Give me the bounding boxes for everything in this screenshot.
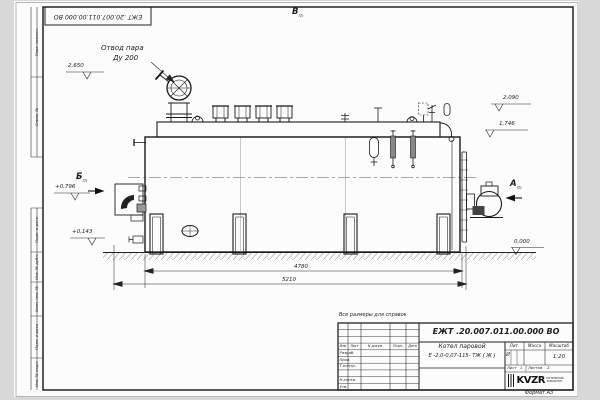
front-burner xyxy=(115,184,146,243)
elevation-marks xyxy=(54,72,544,255)
designation: ЕЖТ .20.007.011.00.000 ВО xyxy=(420,325,572,341)
view-label-front: Б(2) xyxy=(76,173,88,184)
lit-header: Лит. xyxy=(505,344,524,349)
elevation-burner-axis: +0,796 xyxy=(55,184,75,190)
col-header-podp: Подп. xyxy=(390,345,406,349)
supports xyxy=(150,214,450,254)
reference-note: Все размеры для справок xyxy=(339,313,407,319)
view-rear-letter: А xyxy=(510,179,517,189)
row-tkontr: Т.контр. xyxy=(340,364,356,368)
top-fittings xyxy=(134,103,454,146)
scale-value: 1:20 xyxy=(545,354,573,360)
kvzr-logo: KVZR КОТЕЛЬНЫЙ ЗАВОД РЭП xyxy=(508,374,563,387)
ground-line xyxy=(103,253,536,261)
view-rear-ref: (2) xyxy=(517,186,522,190)
dimension-body-length: 4780 xyxy=(294,264,308,270)
row-prov: Пров. xyxy=(340,358,351,362)
top-stamp: ЕЖТ .20.007.011.00.000 ВО xyxy=(45,7,151,25)
sheets-label: Листов xyxy=(528,366,542,370)
format-label: Формат А3 xyxy=(505,391,573,397)
view-front-ref: (2) xyxy=(82,179,87,183)
logo-subtext: КОТЕЛЬНЫЙ ЗАВОД РЭП xyxy=(546,377,563,383)
callout-steam-outlet-line2: Ду 200 xyxy=(113,55,138,63)
margin-label-vzam-inv: Взам. инв. № xyxy=(32,284,42,314)
steam-valve xyxy=(156,71,193,123)
margin-label-inv-dubl: Инв. № дубл. xyxy=(32,253,42,281)
lit-value: И xyxy=(505,353,511,359)
view-top-ref: (2) xyxy=(298,14,303,18)
rear-door-pump xyxy=(461,152,504,242)
level-gauges xyxy=(370,130,416,168)
row-nkontr: Н.контр. xyxy=(340,378,357,382)
margin-label-inv-podl: Инв. № подл. xyxy=(32,359,42,389)
callout-steam-outlet-line1: Отвод пара xyxy=(101,45,144,53)
elevation-manhole-axis: +0,143 xyxy=(72,229,92,235)
sheet-no: 1 xyxy=(520,366,522,370)
callout-leader xyxy=(151,62,174,82)
margin-label-perv-primen: Перв. примен. xyxy=(32,9,42,75)
logo-bars-icon xyxy=(508,374,515,387)
dimension-overall-length: 5210 xyxy=(282,277,296,283)
view-arrows xyxy=(88,188,522,200)
col-header-list: Лист xyxy=(348,345,361,349)
margin-label-podp-data-2: Подп. и дата xyxy=(32,318,42,356)
row-razrab: Разраб. xyxy=(340,351,355,355)
margin-label-sprav-no: Справ. № xyxy=(32,79,42,155)
product-name-line2: Е -2,0-0,07-115- ТЖ ( Ж ) xyxy=(420,354,504,360)
product-name-line1: Котел паровой xyxy=(420,344,504,351)
col-header-doc: N докум. xyxy=(361,345,390,349)
view-label-top: В(2) xyxy=(292,8,304,19)
elevation-ground: 0,000 xyxy=(514,239,530,245)
col-header-data: Дата xyxy=(406,345,419,349)
manhole xyxy=(181,226,199,237)
logo-sub2: ЗАВОД РЭП xyxy=(546,380,563,383)
elevation-drum-top: 2,090 xyxy=(503,95,519,101)
sheet-label: Лист xyxy=(507,366,517,370)
row-utv: Утв. xyxy=(340,385,348,389)
view-label-rear: А(2) xyxy=(510,180,522,191)
drawing-sheet: ЕЖТ .20.007.011.00.000 ВО Перв. примен. … xyxy=(0,0,600,400)
sheets-total: 2 xyxy=(547,366,549,370)
elevation-steam-valve-top: 2,650 xyxy=(68,63,84,69)
col-header-izm: Изм xyxy=(338,345,348,349)
elevation-casing-top: 1,746 xyxy=(499,121,515,127)
hatch-boxes xyxy=(212,106,293,122)
scale-header: Масштаб xyxy=(545,344,573,349)
mass-header: Масса xyxy=(524,344,545,349)
margin-label-podp-data-1: Подп. и дата xyxy=(32,210,42,250)
logo-text: KVZR xyxy=(517,375,545,386)
